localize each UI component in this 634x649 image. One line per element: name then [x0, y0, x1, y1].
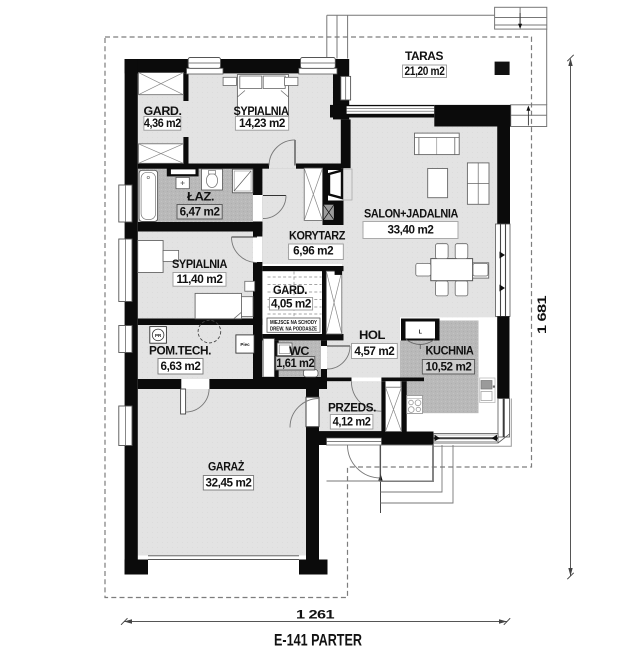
svg-text:ŁAZ.: ŁAZ.	[187, 192, 214, 204]
svg-text:6,63 m2: 6,63 m2	[161, 361, 201, 373]
svg-text:DREW. NA PODDASZE: DREW. NA PODDASZE	[270, 327, 318, 333]
svg-text:14,23 m2: 14,23 m2	[239, 118, 285, 130]
svg-text:E-141 PARTER: E-141 PARTER	[274, 632, 362, 649]
svg-text:6,96 m2: 6,96 m2	[293, 245, 333, 257]
svg-text:6,47 m2: 6,47 m2	[180, 207, 220, 219]
svg-text:1 261: 1 261	[296, 610, 335, 622]
svg-text:PR: PR	[155, 333, 162, 338]
svg-text:1 681: 1 681	[537, 295, 549, 334]
svg-text:MIEJSCE NA SCHODY: MIEJSCE NA SCHODY	[270, 320, 318, 326]
svg-text:SYPIALNIA: SYPIALNIA	[172, 259, 227, 271]
svg-text:KORYTARZ: KORYTARZ	[289, 230, 345, 242]
svg-text:POM.TECH.: POM.TECH.	[149, 345, 211, 357]
svg-text:1,61 m2: 1,61 m2	[276, 358, 314, 370]
svg-text:TARAS: TARAS	[405, 51, 444, 63]
svg-text:32,45 m2: 32,45 m2	[206, 478, 252, 490]
svg-text:4,36 m2: 4,36 m2	[144, 118, 181, 130]
svg-text:4,57 m2: 4,57 m2	[354, 346, 394, 358]
svg-text:10,52 m2: 10,52 m2	[426, 362, 472, 374]
svg-text:11,40 m2: 11,40 m2	[177, 274, 223, 286]
svg-text:4,05 m2: 4,05 m2	[271, 298, 311, 310]
svg-text:HOL: HOL	[359, 330, 385, 342]
svg-text:GARAŻ: GARAŻ	[208, 461, 244, 474]
svg-text:GARD.: GARD.	[273, 285, 307, 297]
svg-text:Piec: Piec	[240, 342, 250, 347]
svg-text:33,40 m2: 33,40 m2	[388, 225, 434, 237]
svg-text:PRZEDS.: PRZEDS.	[328, 403, 376, 415]
svg-text:KUCHNIA: KUCHNIA	[426, 345, 474, 357]
svg-text:21,20 m2: 21,20 m2	[405, 66, 445, 78]
svg-text:SALON+JADALNIA: SALON+JADALNIA	[364, 209, 458, 221]
svg-text:4,12 m2: 4,12 m2	[333, 417, 371, 429]
